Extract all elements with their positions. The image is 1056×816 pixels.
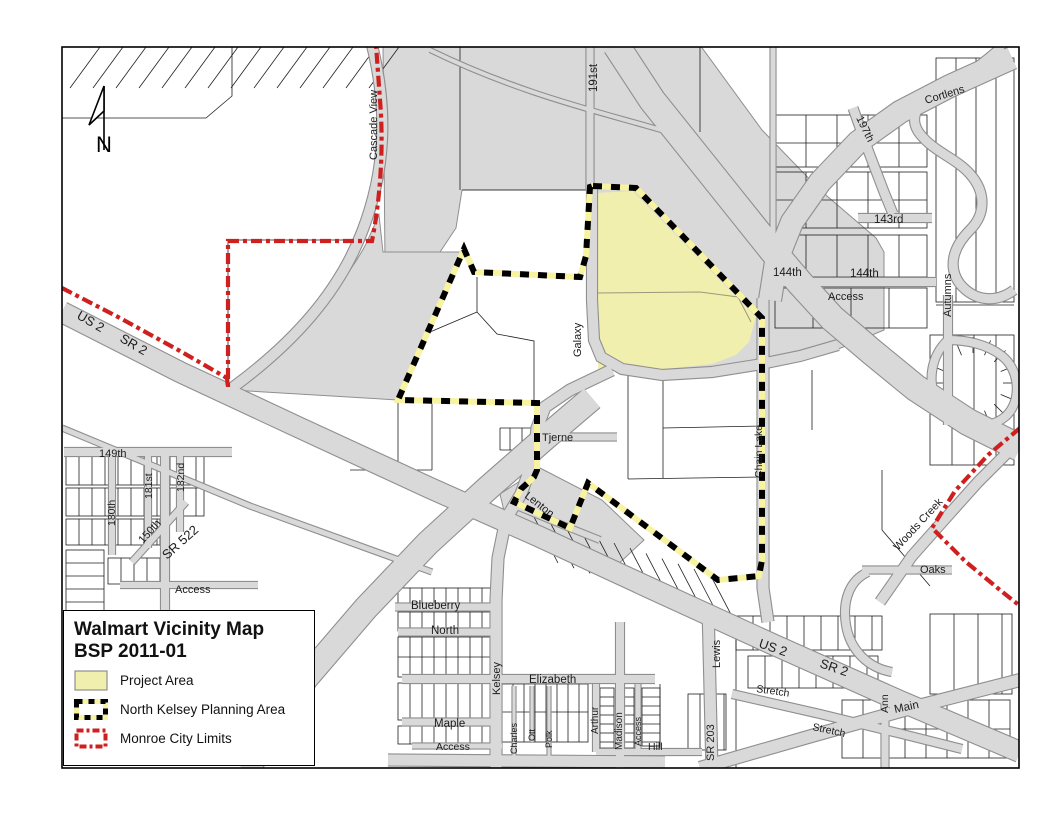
planning-area-swatch bbox=[74, 699, 108, 720]
street-label: Oaks bbox=[920, 564, 946, 576]
street-label: 144th bbox=[773, 267, 802, 279]
street-label: Access bbox=[436, 741, 470, 753]
street-label: Ann bbox=[879, 694, 891, 713]
project-area-swatch bbox=[74, 670, 108, 691]
street-label: 149th bbox=[99, 448, 127, 460]
street-label: 144th bbox=[850, 268, 879, 280]
street-label: 182nd bbox=[175, 463, 187, 492]
legend-label-city-limits: Monroe City Limits bbox=[120, 731, 232, 746]
street-label: Galaxy bbox=[572, 322, 584, 357]
street-label: North bbox=[431, 625, 459, 637]
map-title-line2: BSP 2011-01 bbox=[74, 641, 314, 663]
street-label: Chain Lake bbox=[753, 425, 765, 478]
street-label: Hill bbox=[648, 741, 663, 753]
street-label: Cascade View bbox=[368, 90, 380, 160]
north-arrow-label: N bbox=[96, 132, 112, 157]
street-label: 143rd bbox=[874, 214, 903, 226]
street-label: 191st bbox=[588, 63, 600, 92]
legend-item-project-area: Project Area bbox=[74, 669, 314, 692]
legend-label-north-kelsey: North Kelsey Planning Area bbox=[120, 702, 285, 717]
street-label: Ott bbox=[527, 728, 537, 741]
street-label: Lewis bbox=[711, 639, 723, 668]
legend-title: Walmart Vicinity Map BSP 2011-01 bbox=[74, 619, 314, 663]
street-label: Maple bbox=[434, 718, 465, 730]
street-label: SR 203 bbox=[705, 724, 717, 761]
legend: Walmart Vicinity Map BSP 2011-01 Project… bbox=[63, 610, 315, 766]
street-label: Tjerne bbox=[542, 432, 573, 444]
street-label: Access bbox=[828, 291, 864, 303]
street-label: Arthur bbox=[590, 706, 601, 734]
legend-item-north-kelsey: North Kelsey Planning Area bbox=[74, 698, 314, 721]
legend-label-project-area: Project Area bbox=[120, 673, 194, 688]
legend-item-city-limits: Monroe City Limits bbox=[74, 727, 314, 750]
street-label: Elizabeth bbox=[529, 674, 576, 686]
street-label: Access bbox=[633, 716, 643, 746]
street-label: Polk bbox=[544, 730, 554, 748]
street-label: Charles bbox=[509, 722, 519, 754]
street-label: Blueberry bbox=[411, 600, 460, 612]
map-title-line1: Walmart Vicinity Map bbox=[74, 619, 314, 641]
street-label: Autumns bbox=[942, 273, 954, 317]
street-label: Kelsey bbox=[491, 661, 503, 695]
city-limits-swatch bbox=[74, 728, 108, 749]
street-label: Access bbox=[175, 584, 211, 596]
street-label: 181st bbox=[143, 473, 155, 499]
vicinity-map-page: Cascade View191stCortlens197th143rd144th… bbox=[0, 0, 1056, 816]
street-label: Madison bbox=[614, 712, 625, 750]
street-label: 180th bbox=[106, 500, 118, 526]
